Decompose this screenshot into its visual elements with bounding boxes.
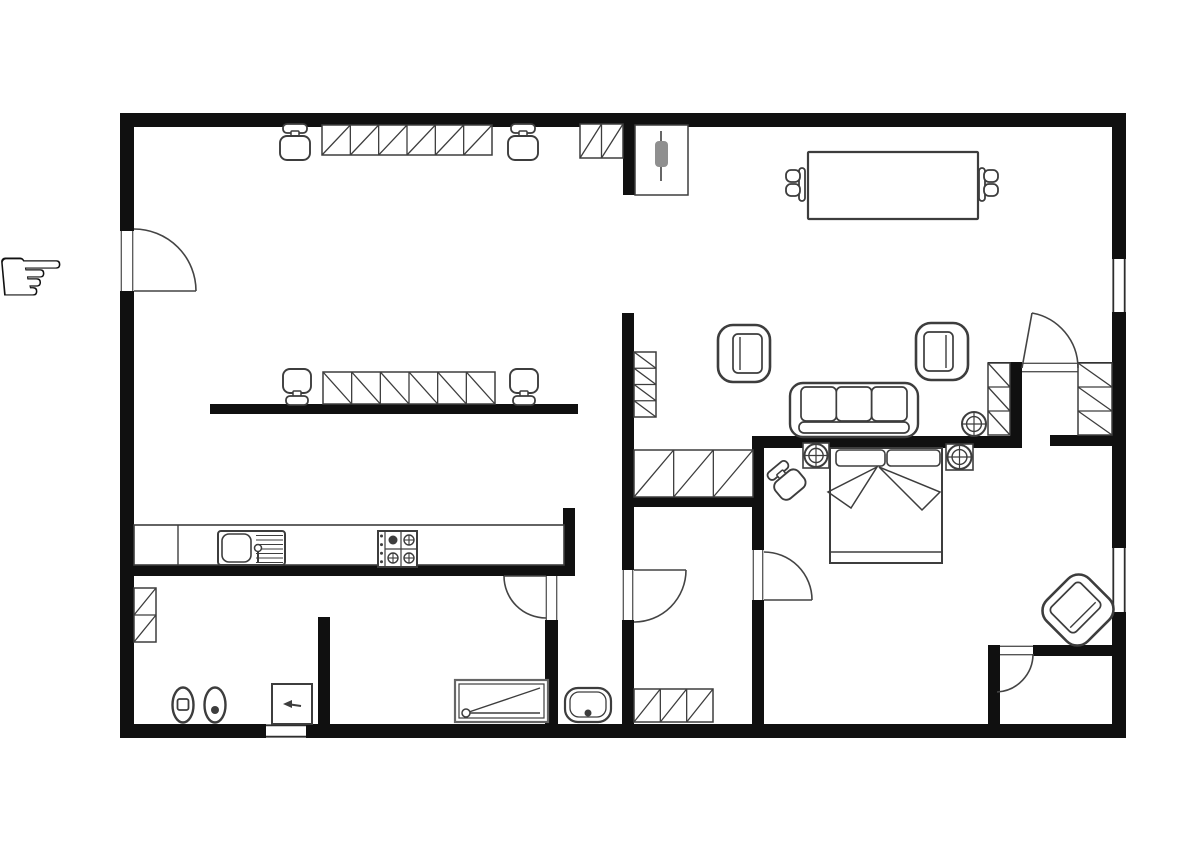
wall-entry-stub (623, 113, 635, 195)
pointer-hand-icon: ☞ (0, 229, 68, 324)
desk-middle (323, 372, 495, 404)
wall-bedroom-left-upper (752, 438, 764, 550)
office-chair-2 (508, 124, 538, 160)
window-right-lower (1112, 548, 1126, 612)
floor-plan-canvas: ☞ (0, 0, 1200, 847)
floor-plan-drawing: ☞ (0, 0, 1200, 847)
kitchen-counter (134, 525, 564, 565)
dining-table (808, 152, 978, 219)
wall-hall-main (622, 313, 634, 570)
armchair-left (718, 325, 770, 382)
wardrobe-left (988, 363, 1010, 435)
armchair-corner (1036, 568, 1119, 651)
door-entry (134, 229, 196, 291)
window-bottom (266, 724, 306, 738)
door-hall (634, 570, 686, 622)
wall-closet-bottom (1050, 435, 1112, 446)
dining-chair-right (979, 168, 998, 201)
wall-storage-top (1033, 645, 1112, 656)
door-closet (1022, 313, 1078, 368)
wall-corridor (634, 497, 753, 507)
sofa (790, 383, 918, 437)
outer-wall-left-lower (120, 291, 134, 738)
wall-storage-left (988, 645, 1000, 724)
outer-wall-bottom-right (306, 724, 1126, 738)
door-bath (504, 576, 546, 618)
opening-storage (1000, 645, 1033, 656)
plant-corner (962, 412, 986, 436)
wall-kitchen-counter (130, 565, 575, 576)
bedroom-stool (764, 457, 809, 502)
entry-closet (635, 125, 688, 195)
wall-bedroom-left-lower (752, 600, 764, 724)
armchair-right (916, 323, 968, 380)
office-chair-1 (280, 124, 310, 160)
outer-wall-right-3 (1112, 612, 1126, 738)
toilet (205, 688, 226, 723)
opening-bath (545, 576, 558, 620)
double-bed (828, 448, 942, 563)
outer-wall-right-1 (1112, 113, 1126, 259)
shower-tray (455, 680, 548, 722)
desk-top (322, 125, 492, 155)
closet-kitchen-left (134, 588, 156, 642)
wardrobe-right (1078, 363, 1112, 435)
nightstand-right (946, 444, 973, 470)
door-bedroom (764, 552, 812, 600)
outer-wall-left-upper (120, 113, 134, 231)
dining-chair-left (786, 168, 805, 201)
opening-bedroom (752, 550, 764, 600)
door-storage (997, 654, 1033, 692)
outer-wall-right-2 (1112, 312, 1126, 548)
bidet (173, 688, 194, 723)
opening-closet (1022, 362, 1078, 373)
wall-hall-lower (622, 620, 634, 724)
kitchen-sink (218, 531, 285, 565)
cabinet-entry-small (580, 124, 623, 158)
nightstand-left (803, 443, 829, 468)
shelf-hall (634, 352, 656, 417)
cabinet-corridor (634, 450, 753, 497)
washing-machine (272, 684, 312, 724)
washbasin (565, 688, 611, 722)
wall-toilet (318, 617, 330, 724)
office-chair-4 (510, 369, 538, 405)
window-right-upper (1112, 259, 1126, 312)
stove (378, 531, 417, 567)
outer-wall-bottom-left (120, 724, 266, 738)
wall-closet-inner (1010, 363, 1022, 448)
opening-entry (120, 231, 134, 291)
cabinet-hall-bottom (634, 689, 713, 722)
opening-hall (622, 570, 634, 620)
office-chair-3 (283, 369, 311, 405)
